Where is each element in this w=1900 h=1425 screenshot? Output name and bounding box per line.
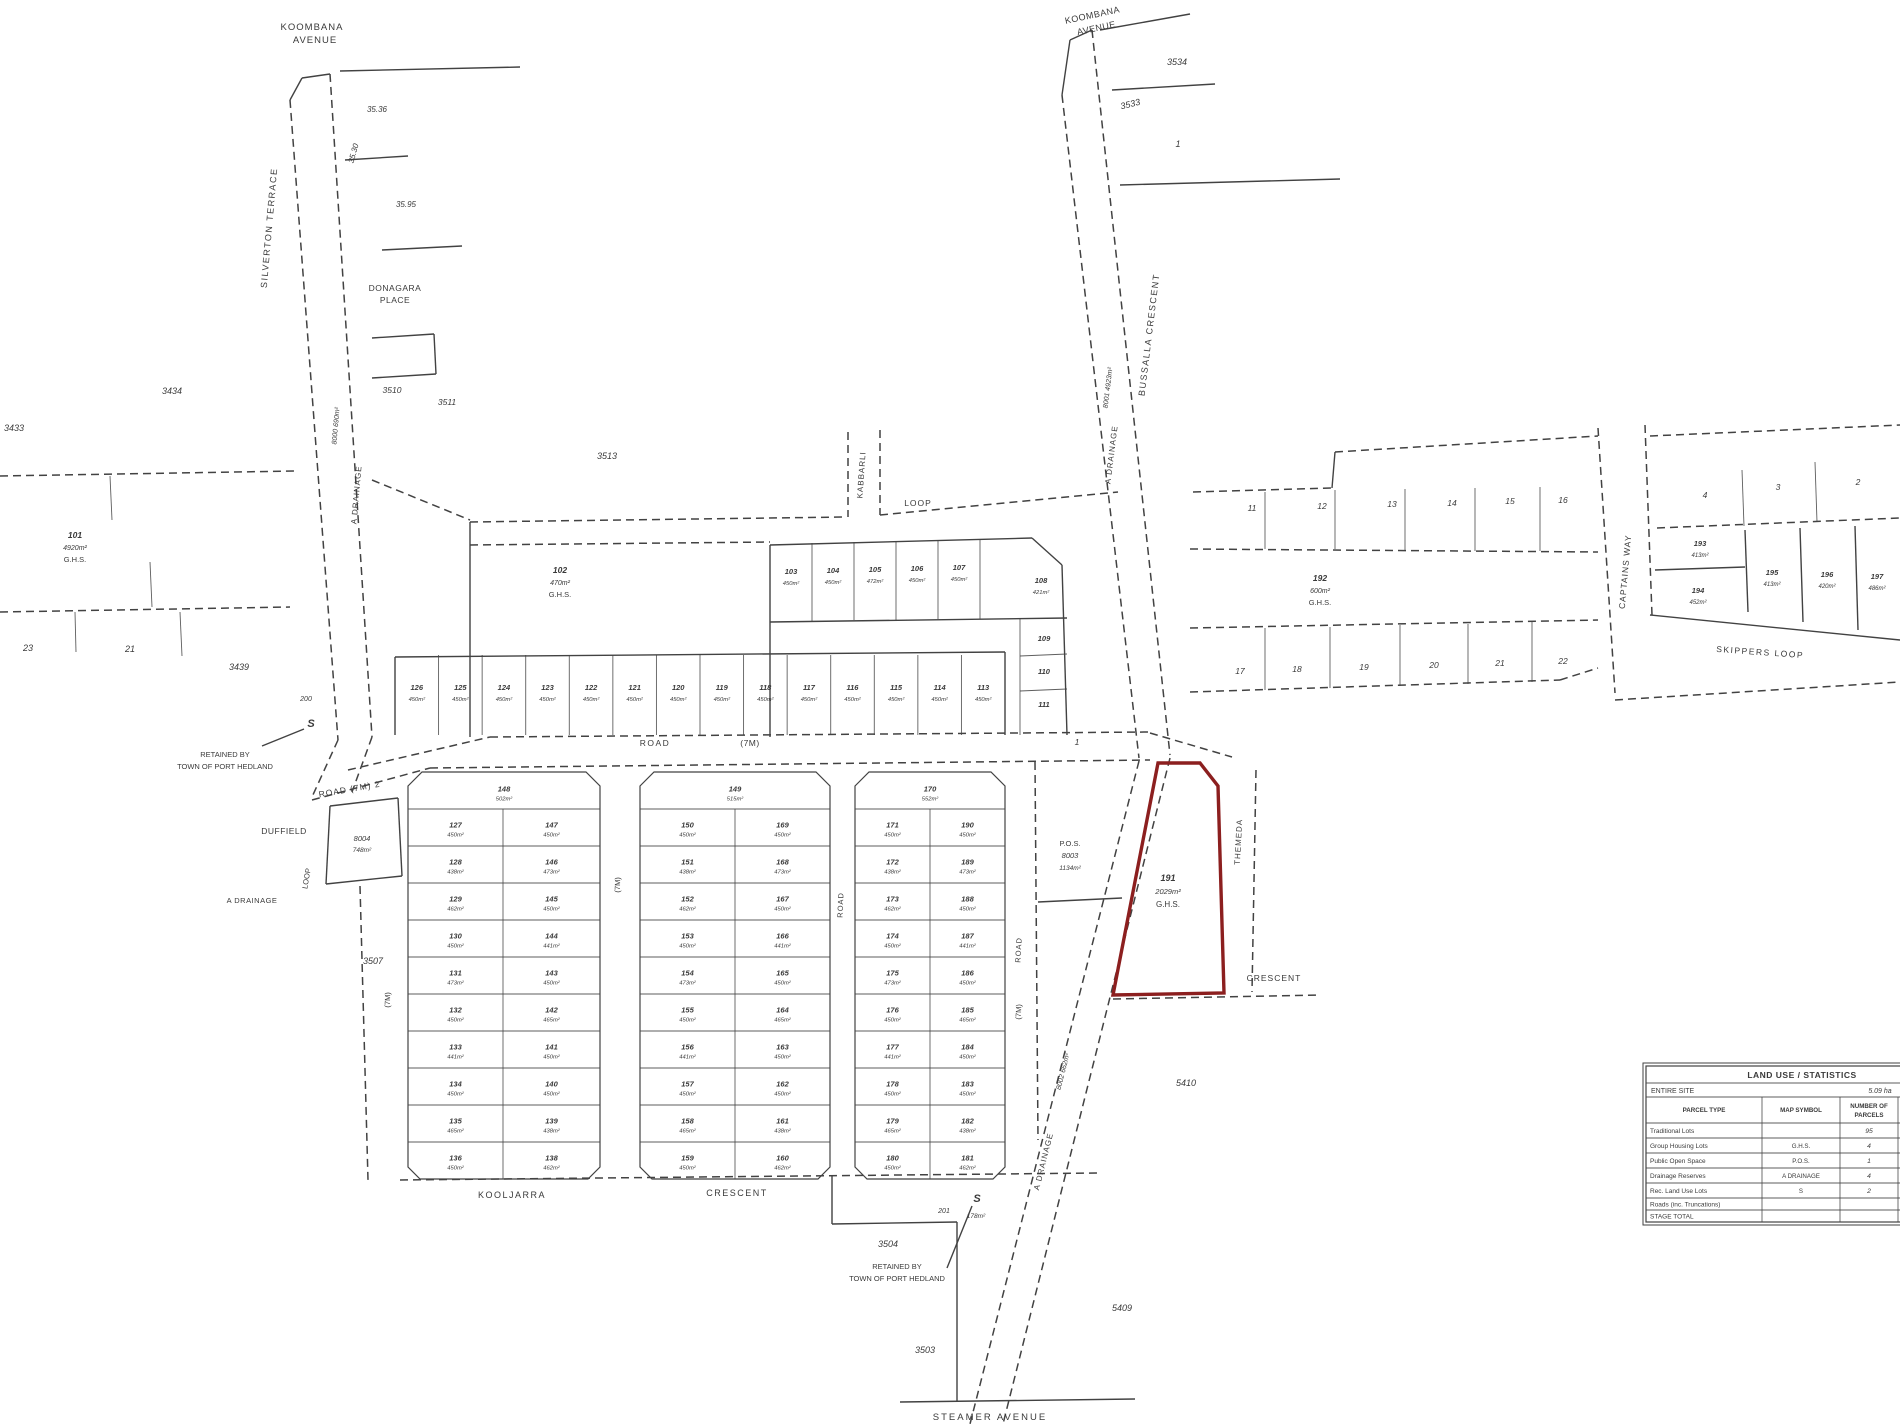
map-label: 101 bbox=[68, 530, 82, 540]
map-label: 104 bbox=[827, 566, 840, 575]
boundary-line bbox=[326, 806, 330, 884]
lot-area: 450m² bbox=[884, 944, 902, 950]
boundary-line bbox=[372, 334, 434, 338]
lot-area: 450m² bbox=[774, 833, 792, 839]
map-label: 17 bbox=[1235, 666, 1245, 676]
lot-area: 450m² bbox=[447, 1092, 465, 1098]
lot-number: 117 bbox=[803, 683, 816, 692]
table-cell: 4 bbox=[1867, 1143, 1871, 1150]
lot-number: 128 bbox=[449, 858, 462, 867]
lot-area: 515m² bbox=[727, 797, 745, 803]
map-label: 35.95 bbox=[396, 200, 417, 209]
lot-area: 450m² bbox=[447, 1018, 465, 1024]
map-label: STEAMER AVENUE bbox=[933, 1412, 1047, 1423]
map-label: (7M) bbox=[740, 738, 759, 748]
map-label: CAPTAINS WAY bbox=[1617, 534, 1633, 609]
lot-number: 126 bbox=[411, 683, 424, 692]
boundary-line bbox=[770, 538, 1032, 545]
map-label: A DRAINAGE bbox=[1103, 425, 1119, 485]
map-label: 4 bbox=[1703, 490, 1708, 500]
map-label: 178m² bbox=[967, 1213, 986, 1220]
boundary-line bbox=[398, 798, 402, 876]
map-label: 11 bbox=[1248, 503, 1257, 513]
boundary-line bbox=[1190, 620, 1598, 628]
lot-area: 450m² bbox=[931, 697, 949, 703]
lot-number: 178 bbox=[886, 1080, 899, 1089]
boundary-line bbox=[1020, 689, 1067, 691]
lot-area: 450m² bbox=[447, 1166, 465, 1172]
boundary-line bbox=[75, 612, 76, 652]
lot-area: 450m² bbox=[959, 907, 977, 913]
statistics-table: LAND USE / STATISTICSENTIRE SITE5.09 haP… bbox=[1643, 1063, 1900, 1225]
boundary-line bbox=[1035, 762, 1038, 1140]
map-label: 192 bbox=[1313, 573, 1327, 583]
lot-area: 450m² bbox=[959, 1055, 977, 1061]
table-cell: Traditional Lots bbox=[1650, 1128, 1695, 1135]
table-header: PARCEL TYPE bbox=[1683, 1107, 1726, 1114]
map-label: KOOMBANA bbox=[281, 22, 344, 33]
lot-number: 114 bbox=[934, 683, 947, 692]
map-label: BUSSALLA CRESCENT bbox=[1137, 273, 1162, 397]
map-label: ROAD bbox=[640, 738, 671, 748]
map-label: 413m² bbox=[1763, 582, 1781, 588]
lot-number: 181 bbox=[961, 1154, 974, 1163]
lot-area: 552m² bbox=[922, 797, 940, 803]
lot-number: 173 bbox=[886, 895, 899, 904]
map-label: 450m² bbox=[909, 578, 927, 584]
boundary-line bbox=[770, 618, 1067, 622]
map-label: 35.30 bbox=[347, 142, 361, 164]
lot-number: 171 bbox=[886, 821, 899, 830]
lot-area: 441m² bbox=[774, 944, 792, 950]
boundary-line bbox=[290, 78, 302, 100]
lot-area: 473m² bbox=[543, 870, 561, 876]
map-label: 3434 bbox=[162, 386, 182, 396]
table-cell: Public Open Space bbox=[1650, 1158, 1706, 1165]
boundary-line bbox=[1038, 898, 1122, 902]
map-label: 421m² bbox=[1033, 590, 1051, 596]
map-label: A DRAINAGE bbox=[227, 896, 278, 905]
map-label: 4920m² bbox=[63, 545, 87, 552]
lot-number: 124 bbox=[498, 683, 511, 692]
roads-layer bbox=[0, 14, 1900, 1424]
map-label: 3533 bbox=[1119, 97, 1141, 112]
map-label: 194 bbox=[1692, 586, 1705, 595]
lot-area: 450m² bbox=[452, 697, 470, 703]
lot-area: 450m² bbox=[774, 981, 792, 987]
lot-area: 450m² bbox=[679, 1092, 697, 1098]
boundary-line bbox=[382, 246, 462, 250]
boundary-line bbox=[180, 612, 182, 656]
boundary-line bbox=[1645, 425, 1652, 615]
table-cell: Drainage Reserves bbox=[1650, 1173, 1706, 1180]
map-label: 21 bbox=[124, 644, 135, 654]
map-label: 19 bbox=[1359, 662, 1369, 672]
lot-number: 148 bbox=[498, 785, 511, 794]
lot-number: 141 bbox=[545, 1043, 558, 1052]
boundary-line bbox=[360, 886, 368, 1180]
map-label: 3504 bbox=[878, 1239, 898, 1249]
boundary-line bbox=[1657, 518, 1900, 528]
lot-area: 462m² bbox=[884, 907, 902, 913]
boundary-line bbox=[832, 1222, 957, 1224]
boundary-line bbox=[1800, 528, 1803, 622]
lot-number: 120 bbox=[672, 683, 685, 692]
lot-area: 438m² bbox=[679, 870, 697, 876]
lot-number: 125 bbox=[454, 683, 467, 692]
lot-area: 450m² bbox=[670, 697, 688, 703]
table-cell: 95 bbox=[1865, 1128, 1873, 1135]
map-label: G.H.S. bbox=[1156, 900, 1180, 909]
lot-number: 127 bbox=[449, 821, 462, 830]
lot-area: 450m² bbox=[774, 1092, 792, 1098]
map-label: 3439 bbox=[229, 662, 249, 672]
lot-area: 473m² bbox=[679, 981, 697, 987]
map-label: LOOP bbox=[904, 498, 932, 508]
map-label: KABBARLI bbox=[855, 451, 867, 499]
boundary-line bbox=[1815, 462, 1817, 522]
lot-number: 123 bbox=[541, 683, 554, 692]
boundary-line bbox=[1650, 425, 1900, 436]
map-label: 197 bbox=[1871, 572, 1884, 581]
map-label: 21 bbox=[1494, 658, 1505, 668]
lot-number: 118 bbox=[759, 683, 772, 692]
lot-number: 170 bbox=[924, 785, 937, 794]
lot-number: 153 bbox=[681, 932, 694, 941]
lot-number: 138 bbox=[545, 1154, 558, 1163]
lot-number: 133 bbox=[449, 1043, 462, 1052]
lot-number: 135 bbox=[449, 1117, 462, 1126]
boundary-line bbox=[348, 737, 490, 770]
table-title: LAND USE / STATISTICS bbox=[1747, 1070, 1856, 1080]
table-cell: 2 bbox=[1866, 1188, 1871, 1195]
lot-area: 450m² bbox=[884, 1018, 902, 1024]
map-label: 3511 bbox=[438, 397, 457, 407]
map-label: 35.36 bbox=[367, 105, 388, 114]
lot-number: 165 bbox=[776, 969, 789, 978]
map-label: 2 bbox=[1855, 477, 1861, 487]
lot-number: 174 bbox=[886, 932, 899, 941]
map-label: CRESCENT bbox=[1247, 973, 1302, 983]
map-label: 3510 bbox=[383, 385, 402, 395]
map-label: 3507 bbox=[363, 956, 384, 966]
boundary-line bbox=[326, 876, 402, 884]
lot-number: 161 bbox=[776, 1117, 789, 1126]
table-cell: Group Housing Lots bbox=[1650, 1143, 1709, 1150]
boundary-line bbox=[262, 729, 304, 746]
boundary-line bbox=[1650, 615, 1900, 640]
map-label: 15 bbox=[1505, 496, 1515, 506]
boundary-line bbox=[1120, 179, 1340, 185]
map-label: TOWN OF PORT HEDLAND bbox=[849, 1274, 945, 1283]
map-label: 8001 4923m² bbox=[1103, 366, 1115, 408]
map-label: S bbox=[307, 718, 315, 730]
lot-number: 167 bbox=[776, 895, 789, 904]
map-label: SILVERTON TERRACE bbox=[259, 167, 279, 288]
lot-number: 115 bbox=[890, 683, 903, 692]
map-label: CRESCENT bbox=[706, 1188, 768, 1198]
lot-area: 450m² bbox=[774, 907, 792, 913]
map-label: G.H.S. bbox=[1309, 598, 1332, 607]
boundary-line bbox=[1032, 538, 1062, 565]
map-label: 486m² bbox=[1868, 586, 1886, 592]
lot-area: 438m² bbox=[959, 1129, 977, 1135]
boundary-line bbox=[1003, 758, 1170, 1424]
map-label: 195 bbox=[1766, 568, 1779, 577]
lot-area: 462m² bbox=[774, 1166, 792, 1172]
lot-number: 149 bbox=[729, 785, 742, 794]
lot-number: 188 bbox=[961, 895, 974, 904]
map-label: 200 bbox=[299, 696, 312, 703]
map-label: 3 bbox=[1776, 482, 1781, 492]
map-label: 450m² bbox=[951, 577, 969, 583]
lot-area: 473m² bbox=[884, 981, 902, 987]
lot-number: 169 bbox=[776, 821, 789, 830]
boundary-line bbox=[1150, 733, 1232, 757]
lot-area: 450m² bbox=[679, 833, 697, 839]
boundary-line bbox=[970, 761, 1139, 1424]
boundary-line bbox=[150, 562, 152, 607]
boundary-line bbox=[340, 67, 520, 71]
boundary-line bbox=[470, 517, 846, 522]
lot-strips-layer: 126450m²125450m²124450m²123450m²122450m²… bbox=[395, 652, 1005, 1179]
map-label: KOOLJARRA bbox=[478, 1190, 546, 1200]
lot-number: 175 bbox=[886, 969, 899, 978]
lot-number: 168 bbox=[776, 858, 789, 867]
lot-area: 450m² bbox=[714, 697, 732, 703]
lot-area: 441m² bbox=[447, 1055, 465, 1061]
table-header: NUMBER OF bbox=[1850, 1103, 1888, 1110]
map-label: 5409 bbox=[1112, 1303, 1132, 1313]
lot-number: 180 bbox=[886, 1154, 899, 1163]
lot-area: 450m² bbox=[774, 1055, 792, 1061]
lot-area: 465m² bbox=[959, 1018, 977, 1024]
map-label: 8002 662m² bbox=[1056, 1052, 1072, 1091]
map-label: PLACE bbox=[380, 295, 410, 305]
map-label: TOWN OF PORT HEDLAND bbox=[177, 762, 273, 771]
map-label: 8004 bbox=[354, 834, 371, 843]
lot-area: 502m² bbox=[496, 797, 514, 803]
map-label: 452m² bbox=[1689, 600, 1707, 606]
map-label: AVENUE bbox=[293, 35, 337, 46]
map-label: 450m² bbox=[825, 580, 843, 586]
lot-area: 450m² bbox=[959, 833, 977, 839]
boundary-line bbox=[1855, 526, 1858, 630]
map-label: (7M) bbox=[383, 992, 393, 1008]
map-label: G.H.S. bbox=[549, 590, 572, 599]
map-label: 106 bbox=[911, 564, 924, 573]
lot-number: 179 bbox=[886, 1117, 899, 1126]
table-cell: Rec. Land Use Lots bbox=[1650, 1188, 1708, 1195]
map-label: 103 bbox=[785, 567, 798, 576]
map-label: S bbox=[973, 1193, 981, 1205]
lot-area: 462m² bbox=[959, 1166, 977, 1172]
lot-number: 119 bbox=[716, 683, 729, 692]
map-label: 12 bbox=[1317, 501, 1327, 511]
lot-area: 450m² bbox=[543, 833, 561, 839]
boundary-line bbox=[900, 1399, 1135, 1402]
lot-number: 144 bbox=[545, 932, 558, 941]
boundary-line bbox=[1615, 682, 1900, 700]
lot-area: 450m² bbox=[447, 833, 465, 839]
lot-number: 156 bbox=[681, 1043, 694, 1052]
map-label: 420m² bbox=[1818, 584, 1836, 590]
map-label: 109 bbox=[1038, 634, 1051, 643]
map-label: 3433 bbox=[4, 423, 24, 433]
lot-area: 450m² bbox=[844, 697, 862, 703]
table-entire-site-value: 5.09 ha bbox=[1868, 1088, 1891, 1095]
map-labels-layer: KOOMBANAAVENUESILVERTON TERRACE35.3635.3… bbox=[4, 4, 1887, 1423]
table-header: MAP SYMBOL bbox=[1780, 1107, 1822, 1114]
lot-number: 154 bbox=[681, 969, 694, 978]
table-cell: 4 bbox=[1867, 1173, 1871, 1180]
map-label: 16 bbox=[1558, 495, 1568, 505]
lot-number: 155 bbox=[681, 1006, 694, 1015]
lot-number: 184 bbox=[961, 1043, 974, 1052]
lot-area: 450m² bbox=[543, 907, 561, 913]
lot-area: 450m² bbox=[543, 1092, 561, 1098]
boundary-line bbox=[1252, 770, 1256, 992]
lot-number: 131 bbox=[449, 969, 462, 978]
map-label: 8003 bbox=[1062, 851, 1080, 860]
boundary-line bbox=[1332, 452, 1335, 488]
lot-area: 438m² bbox=[774, 1129, 792, 1135]
lot-number: 159 bbox=[681, 1154, 694, 1163]
boundary-line bbox=[290, 100, 338, 740]
lot-area: 462m² bbox=[543, 1166, 561, 1172]
lot-number: 190 bbox=[961, 821, 974, 830]
map-label: G.H.S. bbox=[64, 555, 87, 564]
lot-area: 473m² bbox=[774, 870, 792, 876]
lot-number: 147 bbox=[545, 821, 558, 830]
lot-area: 450m² bbox=[679, 944, 697, 950]
lot-area: 450m² bbox=[757, 697, 775, 703]
map-label: 110 bbox=[1038, 667, 1051, 676]
boundary-line bbox=[0, 607, 290, 612]
boundary-line bbox=[434, 334, 436, 374]
lot-number: 157 bbox=[681, 1080, 694, 1089]
boundary-line bbox=[1193, 488, 1332, 492]
lot-number: 139 bbox=[545, 1117, 558, 1126]
lot-area: 438m² bbox=[447, 870, 465, 876]
lot-number: 146 bbox=[545, 858, 558, 867]
lot-number: 145 bbox=[545, 895, 558, 904]
map-label: 470m² bbox=[550, 580, 571, 587]
map-label: 107 bbox=[953, 563, 966, 572]
lot-area: 450m² bbox=[884, 1092, 902, 1098]
map-label: RETAINED BY bbox=[872, 1262, 921, 1271]
lot-area: 450m² bbox=[975, 697, 993, 703]
lot-number: 113 bbox=[977, 683, 990, 692]
map-label: 196 bbox=[1821, 570, 1834, 579]
lot-area: 450m² bbox=[959, 1092, 977, 1098]
table-cell: G.H.S. bbox=[1792, 1143, 1811, 1150]
map-label: A DRAINAGE bbox=[1032, 1132, 1055, 1191]
lot-number: 183 bbox=[961, 1080, 974, 1089]
lot-number: 132 bbox=[449, 1006, 462, 1015]
map-label: 8000 690m² bbox=[331, 406, 341, 444]
map-label: 3503 bbox=[915, 1345, 935, 1355]
map-label: LOOP bbox=[300, 868, 312, 890]
lot-area: 450m² bbox=[539, 697, 557, 703]
lot-number: 152 bbox=[681, 895, 694, 904]
lot-number: 163 bbox=[776, 1043, 789, 1052]
lot-number: 143 bbox=[545, 969, 558, 978]
lot-number: 121 bbox=[628, 683, 641, 692]
lot-area: 441m² bbox=[959, 944, 977, 950]
map-label: 748m² bbox=[353, 847, 372, 854]
boundary-line bbox=[372, 480, 470, 520]
boundary-line bbox=[302, 74, 330, 78]
map-label: 20 bbox=[1428, 660, 1439, 670]
lot-number: 129 bbox=[449, 895, 462, 904]
table-cell: STAGE TOTAL bbox=[1650, 1214, 1694, 1221]
lot-number: 150 bbox=[681, 821, 694, 830]
lot-number: 182 bbox=[961, 1117, 974, 1126]
lot-number: 186 bbox=[961, 969, 974, 978]
map-label: (7M) bbox=[1014, 1003, 1024, 1019]
boundary-line bbox=[1745, 530, 1748, 612]
boundary-line bbox=[1560, 668, 1598, 680]
boundary-line bbox=[0, 471, 295, 476]
lot-area: 450m² bbox=[447, 944, 465, 950]
lot-number: 160 bbox=[776, 1154, 789, 1163]
lot-area: 465m² bbox=[543, 1018, 561, 1024]
map-label: 413m² bbox=[1691, 553, 1709, 559]
boundary-line bbox=[470, 542, 770, 545]
boundary-line bbox=[1062, 565, 1067, 735]
table-cell: S bbox=[1799, 1188, 1803, 1195]
boundary-line bbox=[1598, 428, 1615, 693]
lot-area: 465m² bbox=[679, 1129, 697, 1135]
map-label: ROAD bbox=[836, 892, 846, 918]
map-label: RETAINED BY bbox=[200, 750, 249, 759]
lot-area: 462m² bbox=[679, 907, 697, 913]
lot-area: 450m² bbox=[884, 833, 902, 839]
lot-area: 450m² bbox=[496, 697, 514, 703]
table-cell: P.O.S. bbox=[1792, 1158, 1810, 1165]
map-label: 14 bbox=[1447, 498, 1457, 508]
boundary-line bbox=[110, 476, 112, 520]
boundary-line bbox=[1062, 95, 1139, 758]
lot-area: 441m² bbox=[884, 1055, 902, 1061]
boundary-line bbox=[1112, 84, 1215, 90]
lot-area: 450m² bbox=[626, 697, 644, 703]
lot-area: 462m² bbox=[447, 907, 465, 913]
boundary-line bbox=[1190, 549, 1598, 552]
lot-area: 441m² bbox=[679, 1055, 697, 1061]
boundary-line bbox=[330, 798, 398, 806]
lot-number: 189 bbox=[961, 858, 974, 867]
map-label: 191 bbox=[1160, 873, 1175, 883]
map-label: 1 bbox=[1175, 139, 1180, 149]
map-label: 2029m² bbox=[1154, 887, 1181, 896]
map-label: 1134m² bbox=[1059, 865, 1081, 872]
lot-number: 177 bbox=[886, 1043, 899, 1052]
boundary-line bbox=[430, 760, 1150, 768]
map-label: 600m² bbox=[1310, 588, 1331, 595]
lot-number: 140 bbox=[545, 1080, 558, 1089]
lot-area: 450m² bbox=[959, 981, 977, 987]
table-cell: Roads (inc. Truncations) bbox=[1650, 1202, 1720, 1209]
lot-area: 450m² bbox=[543, 981, 561, 987]
lot-area: 465m² bbox=[447, 1129, 465, 1135]
map-label: (7M) bbox=[613, 877, 623, 893]
map-label: DONAGARA bbox=[369, 283, 422, 293]
lot-area: 450m² bbox=[801, 697, 819, 703]
lot-area: 438m² bbox=[884, 870, 902, 876]
boundary-line bbox=[372, 374, 436, 378]
